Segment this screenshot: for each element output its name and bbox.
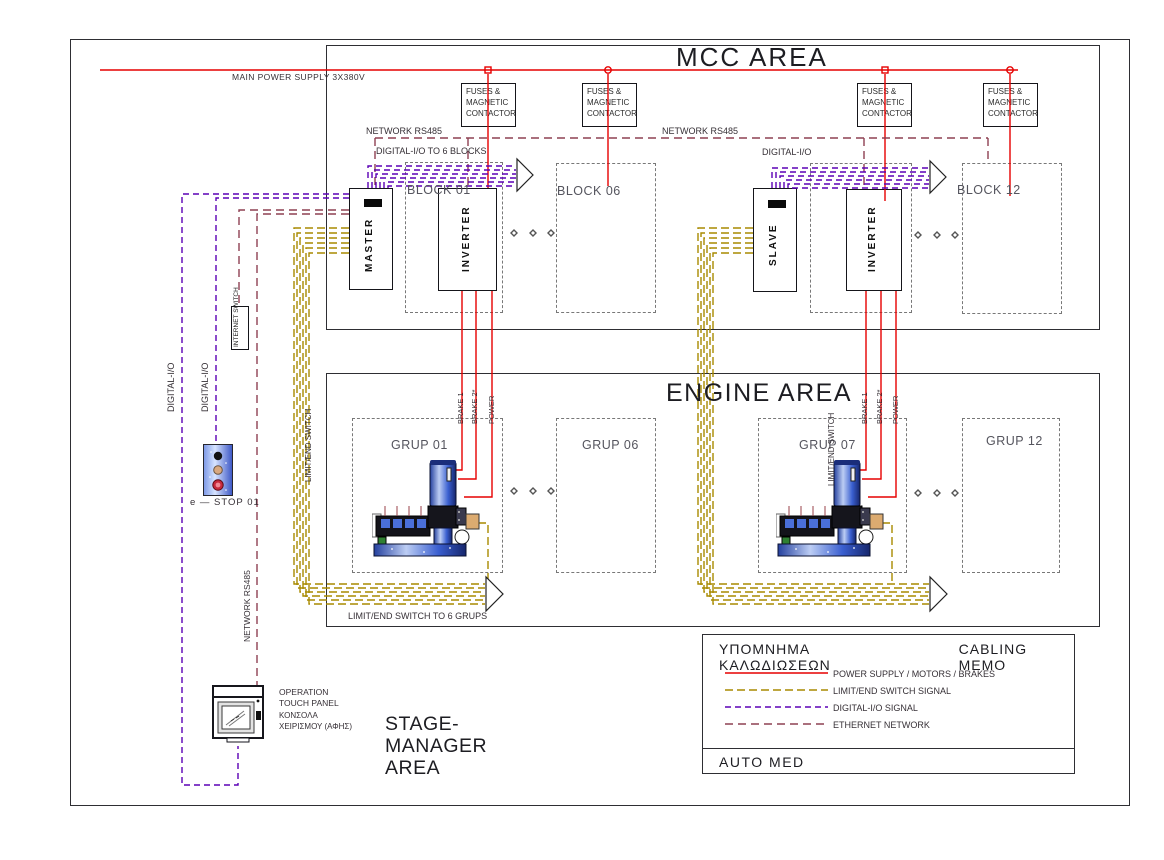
digital-io-to-blocks-label: DIGITAL-I/O TO 6 BLOCKS: [376, 146, 487, 156]
power-label-left: POWER: [487, 396, 496, 424]
brake2-label-left: BRAKE 2*: [470, 389, 479, 424]
brake1-label-right: BRAKE 1: [860, 392, 869, 424]
brake2-label-right: BRAKE 2*: [875, 389, 884, 424]
fuse-contactor-label: FUSES & MAGNETIC CONTACTOR: [858, 84, 911, 119]
legend-entry-limit: LIMIT/END SWITCH SIGNAL: [833, 686, 951, 696]
inverter-label-right: INVERTER: [867, 205, 878, 272]
grup-01-label: GRUP 01: [391, 438, 448, 452]
network-rs485-label-mid: NETWORK RS485: [662, 126, 738, 136]
mcc-area-title: MCC AREA: [676, 42, 828, 73]
fuse-contactor-box-2: FUSES & MAGNETIC CONTACTOR: [582, 83, 637, 127]
digital-io-vertical-label-2: DIGITAL-I/O: [200, 363, 210, 412]
digital-io-vertical-label-1: DIGITAL-I/O: [166, 363, 176, 412]
motor-cylinder: [834, 462, 860, 506]
motor-pump-graphic-left: [372, 458, 502, 562]
network-rs485-vertical-label: NETWORK RS485: [242, 570, 252, 642]
estop-black-button: [214, 452, 222, 460]
limit-switch-vertical-label-left: LIMIT/END SWITCH: [304, 409, 313, 482]
cabling-legend: ΥΠΟΜΝΗΜΑ ΚΑΛΩΔΙΩΣΕΩΝ CABLING MEMO POWER …: [702, 634, 1075, 774]
legend-divider: [703, 748, 1074, 749]
brake1-label-left: BRAKE 1: [456, 392, 465, 424]
fuse-contactor-box-1: FUSES & MAGNETIC CONTACTOR: [461, 83, 516, 127]
block-12-label: BLOCK 12: [957, 183, 1021, 197]
motor-base: [778, 544, 870, 556]
master-display: [364, 199, 382, 207]
block-06-label: BLOCK 06: [557, 184, 621, 198]
wiring-diagram-canvas: FUSES & MAGNETIC CONTACTOR FUSES & MAGNE…: [0, 0, 1164, 860]
console-greek-label: ΚΟΝΣΟΛΑ ΧΕΙΡΙΣΜΟΥ (ΑΦΗΣ): [279, 711, 352, 733]
fuse-contactor-box-3: FUSES & MAGNETIC CONTACTOR: [857, 83, 912, 127]
legend-entry-ethernet: ETHERNET NETWORK: [833, 720, 930, 730]
inverter-label-left: INVERTER: [461, 205, 472, 272]
slave-display: [768, 200, 786, 208]
touch-panel-device: [212, 685, 264, 745]
junction-box: [870, 514, 883, 529]
grup-12-label: GRUP 12: [986, 434, 1043, 448]
estop-tan-button: [214, 466, 223, 475]
block-01-label: BLOCK 01: [407, 183, 471, 197]
stage-manager-area-title: STAGE- MANAGER AREA: [385, 713, 487, 779]
motor-pump-graphic-right: [776, 458, 906, 562]
junction-box: [466, 514, 479, 529]
network-rs485-label-left: NETWORK RS485: [366, 126, 442, 136]
estop-device: [203, 444, 233, 496]
motor-base: [374, 544, 466, 556]
fuse-contactor-box-4: FUSES & MAGNETIC CONTACTOR: [983, 83, 1038, 127]
master-label: MASTER: [364, 218, 375, 272]
engine-area-title: ENGINE AREA: [666, 379, 852, 408]
motor-cylinder: [430, 462, 456, 506]
digital-io-label-right: DIGITAL-I/O: [762, 147, 811, 157]
main-power-supply-label: MAIN POWER SUPPLY 3X380V: [232, 72, 365, 82]
operation-panel-label: OPERATION TOUCH PANEL: [279, 687, 339, 710]
touch-panel-buttons: [256, 711, 261, 720]
slave-label: SLAVE: [768, 223, 779, 266]
legend-entry-digital: DIGITAL-I/O SIGNAL: [833, 703, 918, 713]
fuse-contactor-label: FUSES & MAGNETIC CONTACTOR: [583, 84, 636, 119]
power-label-right: POWER: [891, 396, 900, 424]
legend-entry-power: POWER SUPPLY / MOTORS / BRAKES: [833, 669, 995, 679]
internet-switch-label: INTERNET SWITCH: [233, 287, 241, 347]
estop-label: e — STOP 01: [190, 497, 260, 508]
fuse-contactor-label: FUSES & MAGNETIC CONTACTOR: [462, 84, 515, 119]
legend-footer: AUTO MED: [719, 754, 805, 770]
limit-switch-to-grups-label: LIMIT/END SWITCH TO 6 GRUPS: [348, 611, 487, 621]
grup-06-label: GRUP 06: [582, 438, 639, 452]
limit-switch-vertical-label-right: LIMIT/END SWITCH: [827, 413, 836, 486]
fuse-contactor-label: FUSES & MAGNETIC CONTACTOR: [984, 84, 1037, 119]
